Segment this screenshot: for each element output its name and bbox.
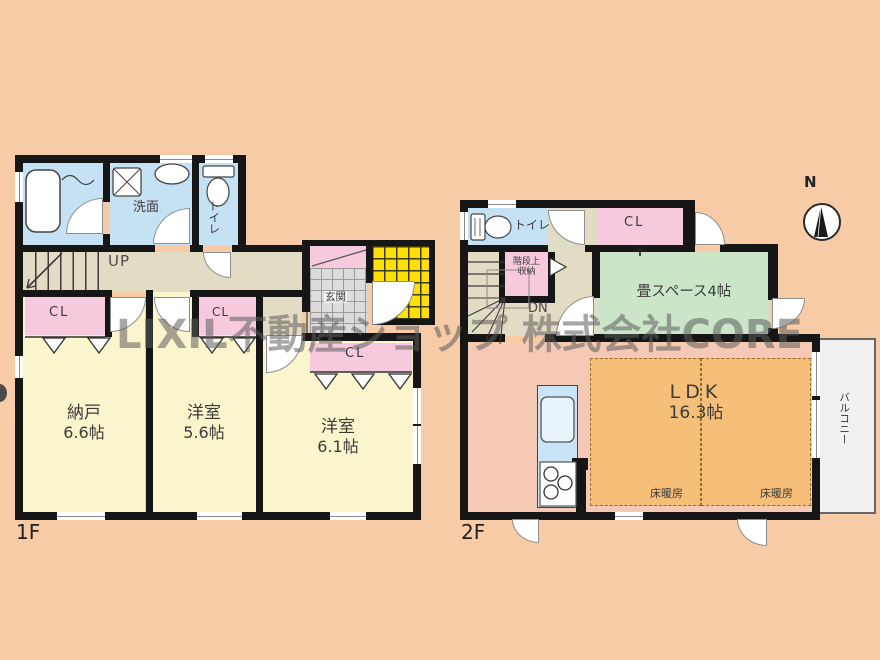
compass-north-label: N <box>804 174 817 191</box>
stair-storage-line1: 階段上 <box>505 257 548 267</box>
stairs-up-label: UP <box>108 253 130 270</box>
ldk-label: LDK 16.3帖 <box>646 382 746 423</box>
cabinet-diagonal <box>312 250 366 266</box>
closet-2f-label: CL <box>624 216 644 231</box>
bath-curtain-line <box>62 176 94 185</box>
hanger-triangle <box>88 338 110 353</box>
watermark: LIXIL不動産ショップ 株式会社CORE <box>116 302 803 360</box>
floorplan-canvas: N <box>0 0 880 660</box>
storage-door-marker <box>550 258 566 276</box>
nando-label: 納戸 6.6帖 <box>36 404 132 442</box>
west56-name: 洋室 <box>156 404 252 424</box>
hanger-triangle <box>43 338 65 353</box>
closet-nando-label: CL <box>49 306 69 321</box>
kitchen-sink <box>541 397 574 442</box>
ldk-name: LDK <box>646 382 746 404</box>
west61-name: 洋室 <box>290 418 386 438</box>
toilet-tank-1f <box>203 166 234 177</box>
west56-size: 5.6帖 <box>156 424 252 442</box>
balcony-label: バルコニー <box>838 392 850 478</box>
west61-size: 6.1帖 <box>290 438 386 456</box>
ldk-size: 16.3帖 <box>646 404 746 424</box>
tatami-label: 畳スペース4帖 <box>598 284 770 301</box>
closet-2f-tick <box>634 245 646 256</box>
toilet-tank-2f <box>471 214 485 240</box>
nando-name: 納戸 <box>36 404 132 424</box>
hanger-triangle <box>315 374 337 389</box>
sink-1f <box>155 164 189 184</box>
nando-size: 6.6帖 <box>36 424 132 442</box>
west61-label: 洋室 6.1帖 <box>290 418 386 456</box>
west56-label: 洋室 5.6帖 <box>156 404 252 442</box>
toilet-bowl-2f <box>485 216 511 238</box>
toilet-2f-label: トイレ <box>514 219 550 233</box>
stairs-arrow-1f <box>27 253 62 288</box>
floor-heating-right-label: 床暖房 <box>760 488 793 501</box>
bathtub <box>26 170 60 232</box>
floor2-label: 2F <box>461 521 485 544</box>
toilet-1f-label: トイレ <box>207 200 220 235</box>
stair-storage-label: 階段上 収納 <box>505 257 548 278</box>
compass-needle <box>814 206 828 237</box>
washroom-label: 洗面 <box>133 201 159 216</box>
hanger-triangle <box>389 374 411 389</box>
floor1-label: 1F <box>16 521 40 544</box>
floor-heating-left-label: 床暖房 <box>650 488 683 501</box>
stair-storage-line2: 収納 <box>505 267 548 277</box>
hanger-triangle <box>352 374 374 389</box>
